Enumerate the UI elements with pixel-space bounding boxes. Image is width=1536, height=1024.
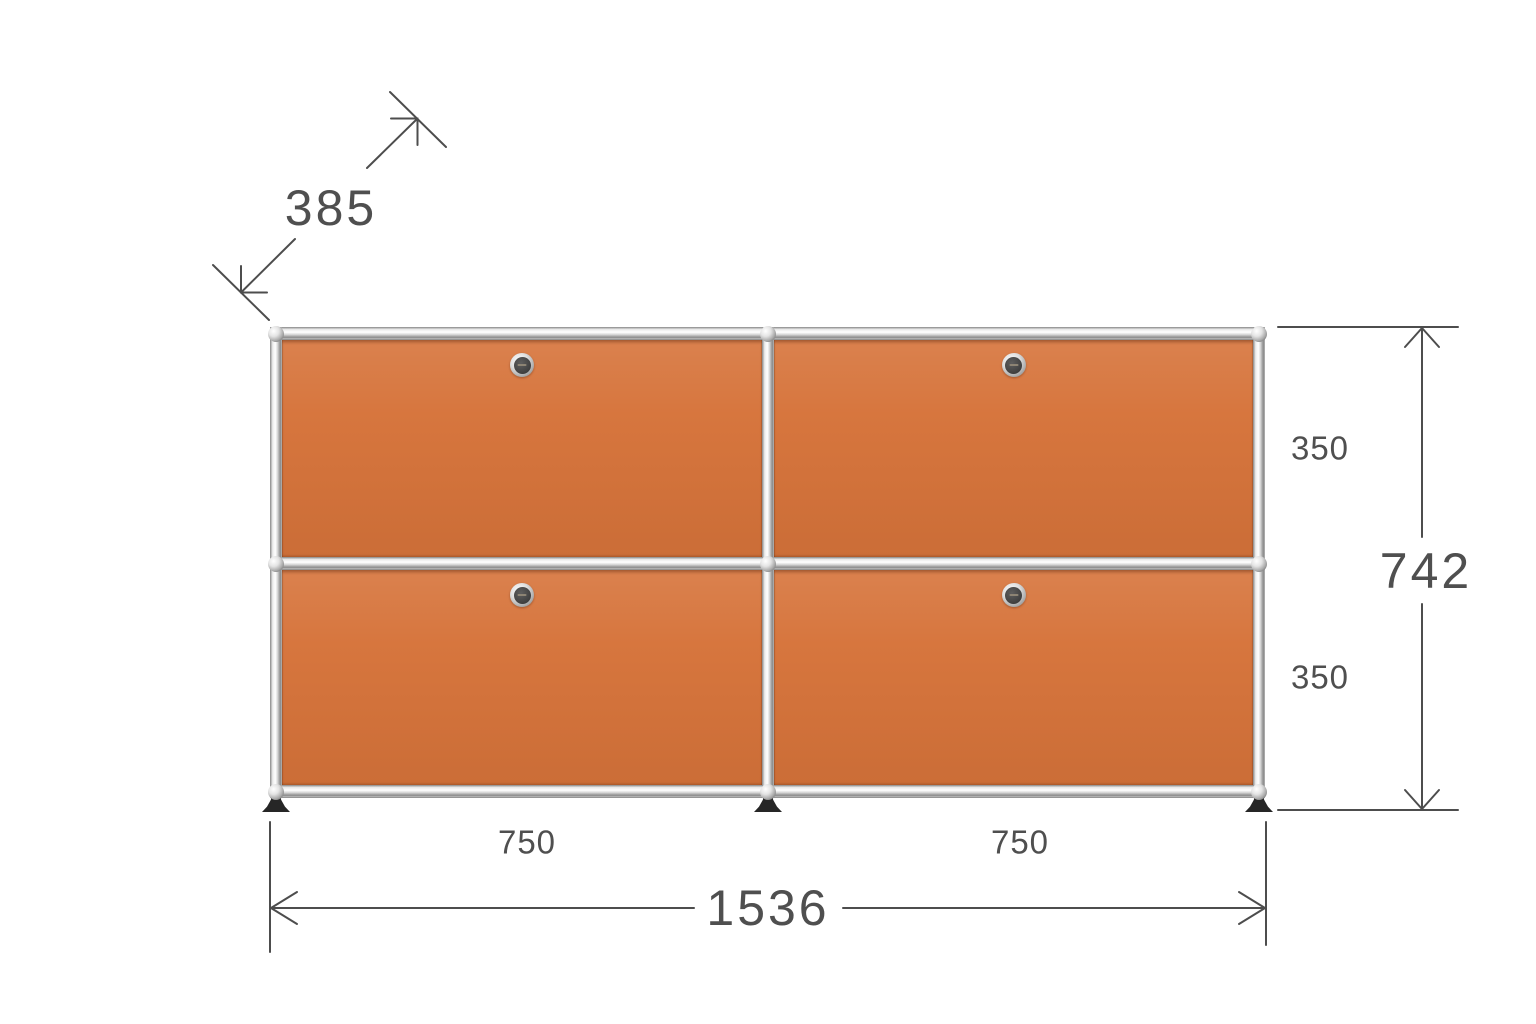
door-top-right: [774, 340, 1253, 557]
right-bay-width-label: 750: [991, 826, 1049, 859]
handle-slot: [518, 594, 527, 596]
drawing-canvas: 385 350 350 742 750 750 1536: [0, 0, 1536, 1024]
door-handle-lock-bottom-left: [510, 583, 534, 607]
handle-face: [514, 357, 531, 374]
chrome-ball-connector: [1251, 326, 1267, 342]
door-bottom-right: [774, 570, 1253, 785]
door-handle-lock-top-right: [1002, 353, 1026, 377]
door-top-left: [282, 340, 762, 557]
chrome-ball-connector: [760, 326, 776, 342]
left-bay-width-label: 750: [498, 826, 556, 859]
handle-face: [514, 587, 531, 604]
sideboard-cabinet: [270, 327, 1265, 812]
total-width-label: 1536: [706, 883, 829, 933]
leveling-foot-center: [754, 798, 782, 812]
door-handle-lock-bottom-right: [1002, 583, 1026, 607]
chrome-ball-connector: [268, 784, 284, 800]
handle-slot: [1009, 594, 1018, 596]
chrome-ball-connector: [1251, 556, 1267, 572]
handle-slot: [518, 364, 527, 366]
chrome-ball-connector: [268, 326, 284, 342]
top-row-height-label: 350: [1291, 432, 1349, 465]
handle-slot: [1009, 364, 1018, 366]
chrome-ball-connector: [268, 556, 284, 572]
chrome-ball-connector: [1251, 784, 1267, 800]
handle-face: [1005, 587, 1022, 604]
chrome-ball-connector: [760, 784, 776, 800]
chrome-ball-connector: [760, 556, 776, 572]
total-height-label: 742: [1380, 546, 1472, 596]
bottom-row-height-label: 350: [1291, 661, 1349, 694]
depth-label: 385: [285, 183, 377, 233]
door-handle-lock-top-left: [510, 353, 534, 377]
handle-face: [1005, 357, 1022, 374]
door-bottom-left: [282, 570, 762, 785]
